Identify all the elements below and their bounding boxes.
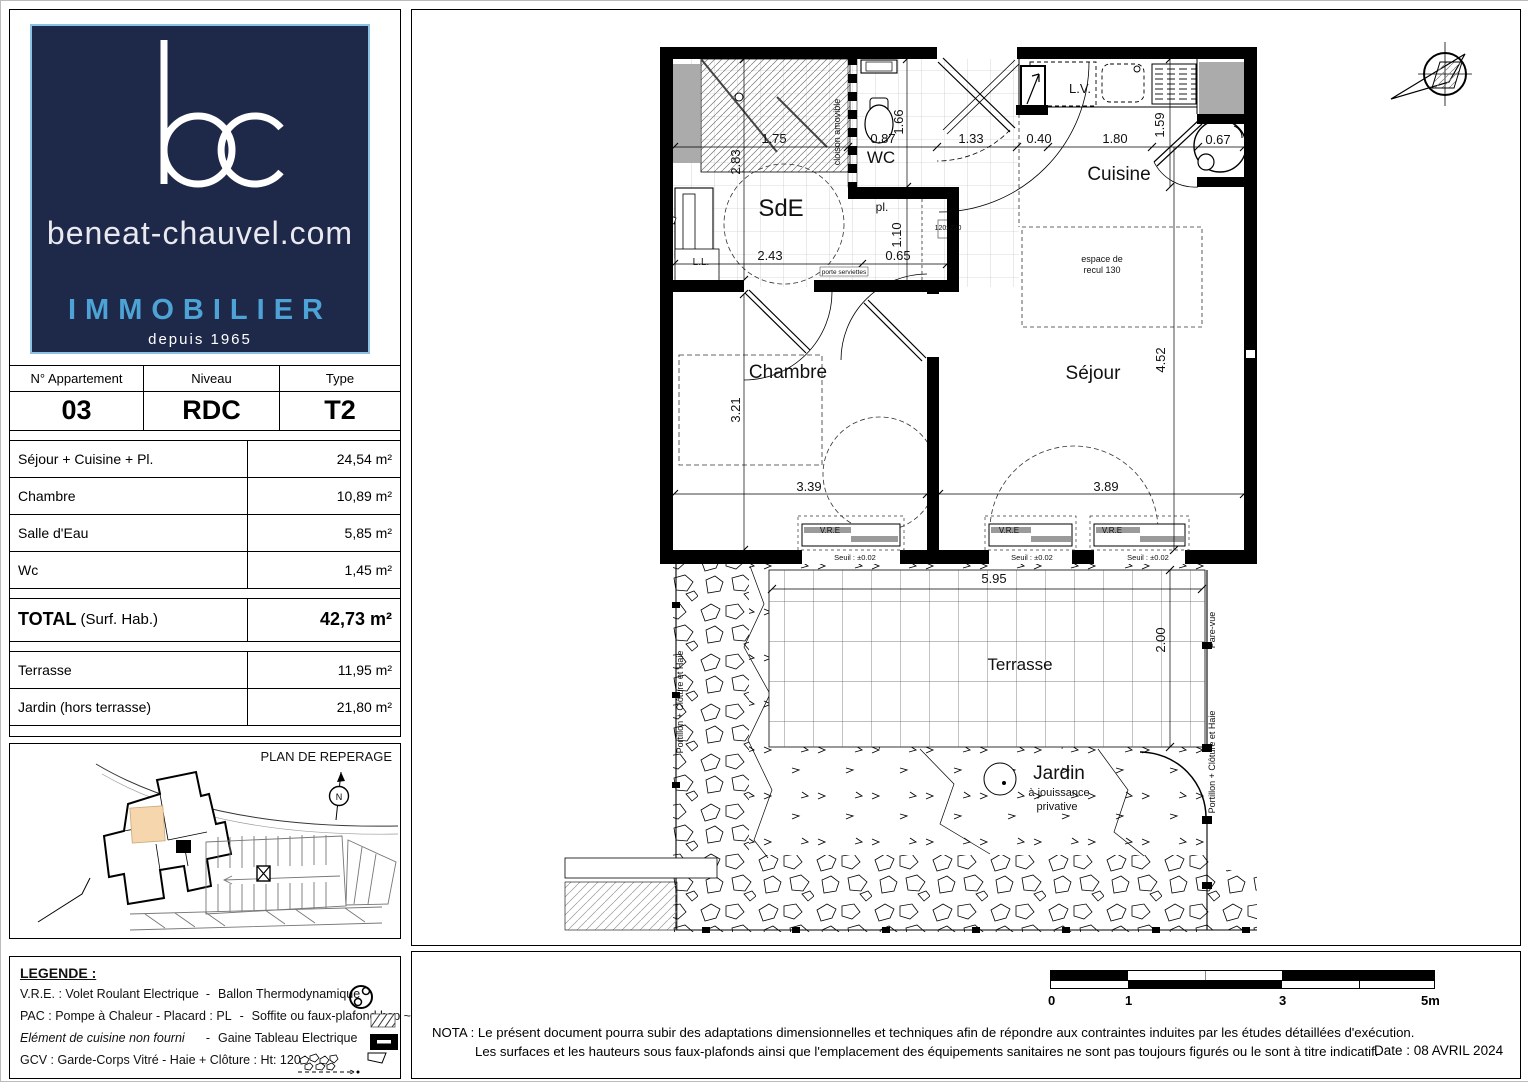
table-value-row: 03 RDC T2: [10, 391, 400, 430]
dim-1-80: 1.80: [1102, 131, 1127, 146]
table-row: Jardin (hors terrasse) 21,80 m²: [10, 688, 400, 725]
row-label: Chambre: [10, 477, 247, 514]
windows: [798, 516, 1189, 550]
table-total-row: TOTAL (Surf. Hab.) 42,73 m²: [10, 598, 400, 641]
legend-right: Ballon Thermodynamique: [218, 987, 360, 1001]
svg-text:N: N: [336, 792, 343, 802]
dim-1-10: 1.10: [889, 222, 904, 247]
table-row: Chambre 10,89 m²: [10, 477, 400, 514]
wall-notch: [1246, 350, 1255, 358]
dim-1-59: 1.59: [1152, 112, 1167, 137]
nota-line1: NOTA : Le présent document pourra subir …: [432, 1025, 1414, 1040]
total-suffix: (Surf. Hab.): [76, 611, 158, 628]
espace-recul-zone: [1022, 227, 1202, 327]
plan-date: Date : 08 AVRIL 2024: [1374, 1043, 1503, 1058]
legend-row: PAC : Pompe à Chaleur - Placard : PL-Sof…: [20, 1007, 400, 1026]
dim-0-65: 0.65: [885, 248, 910, 263]
value-appartement: 03: [10, 391, 143, 430]
jardin-sub-2: privative: [1037, 801, 1078, 813]
label-placard: pl.: [876, 200, 889, 214]
cloison-amovible-partition: [848, 59, 857, 187]
sink-outline: [1102, 64, 1144, 102]
row-label: Salle d'Eau: [10, 514, 247, 551]
row-value: 1,45 m²: [247, 551, 400, 588]
table-row: Salle d'Eau 5,85 m²: [10, 514, 400, 551]
header-appartement: N° Appartement: [10, 365, 143, 391]
total-label: TOTAL: [18, 609, 76, 630]
legend-left: V.R.E. : Volet Roulant Electrique: [20, 985, 198, 1004]
haie-cloture-icon: [296, 1053, 362, 1078]
label-lave-linge: L.L.: [693, 257, 710, 268]
dim-5-95: 5.95: [981, 571, 1006, 586]
table-row: Terrasse 11,95 m²: [10, 651, 400, 688]
room-label-terrasse: Terrasse: [987, 655, 1052, 674]
room-label-cuisine: Cuisine: [1087, 164, 1150, 185]
floorplan-panel: SdEWCCuisineChambreSéjourTerrasseJardinà…: [411, 9, 1521, 946]
scale-label-3: 3: [1279, 993, 1286, 1008]
row-value: 24,54 m²: [247, 440, 400, 477]
row-label: Terrasse: [10, 651, 247, 688]
left-panel: beneat-chauvel.com IMMOBILIER depuis 196…: [9, 9, 401, 737]
legend-sep: -: [232, 1007, 252, 1026]
value-type: T2: [279, 391, 400, 430]
nota-panel: 0 1 3 5m NOTA : Le présent document pour…: [411, 951, 1521, 1079]
agency-logo: beneat-chauvel.com IMMOBILIER depuis 196…: [30, 24, 370, 354]
table-row: Séjour + Cuisine + Pl. 24,54 m²: [10, 440, 400, 477]
dim-4-52: 4.52: [1153, 347, 1168, 372]
table-row: Wc 1,45 m²: [10, 551, 400, 588]
tree-icon: [984, 763, 1016, 795]
soffite-hatch-icon: [370, 1013, 396, 1032]
row-label: Séjour + Cuisine + Pl.: [10, 440, 247, 477]
sde-door-leaf: [745, 290, 810, 353]
north-arrow-icon: [1391, 42, 1472, 106]
room-label-sde: SdE: [758, 195, 803, 222]
dim-3-89: 3.89: [1093, 479, 1118, 494]
pare-vue-label: Pare-vue: [1207, 612, 1217, 649]
stone-bed-bottom: [739, 855, 1209, 932]
legend-right: Gaine Tableau Electrique: [218, 1031, 357, 1045]
dim-2-43: 2.43: [757, 248, 782, 263]
shower-area: [673, 59, 850, 172]
dim-1-33: 0.40: [1026, 131, 1051, 146]
room-label-chambre: Chambre: [749, 362, 827, 383]
scale-label-0: 0: [1048, 993, 1055, 1008]
window-chambre: [798, 516, 904, 550]
row-value: 21,80 m²: [247, 688, 400, 725]
reperage-title: PLAN DE REPERAGE: [261, 749, 393, 764]
scale-label-5m: 5m: [1421, 993, 1440, 1008]
legend-left: PAC : Pompe à Chaleur - Placard : PL: [20, 1009, 232, 1023]
dim-1-33b: 1.33: [958, 131, 983, 146]
chambre-door-leaf: [864, 300, 926, 361]
duct-block: [1199, 62, 1244, 114]
turning-circle-chambre: [823, 417, 937, 531]
scale-bar: 0 1 3 5m: [1050, 970, 1435, 989]
legend-row: Elément de cuisine non fourni-Gaine Tabl…: [20, 1029, 400, 1048]
label-espace-recul-2: recul 130: [1083, 265, 1120, 275]
north-icon: N: [330, 772, 349, 820]
room-label-wc: WC: [867, 148, 895, 167]
dim-2-83: 2.83: [728, 149, 743, 174]
room-label-sejour: Séjour: [1066, 363, 1122, 384]
dim-3-21: 3.21: [728, 397, 743, 422]
highlighted-unit: [130, 806, 165, 843]
dim-1-66: 1.66: [891, 109, 906, 134]
value-niveau: RDC: [143, 391, 279, 430]
total-value: 42,73 m²: [247, 598, 400, 641]
fence-label-left: Portillon + Clôture et Haie: [675, 651, 685, 754]
jardin-sub-1: à jouissance: [1028, 787, 1089, 799]
legend-row: V.R.E. : Volet Roulant Electrique-Ballon…: [20, 985, 400, 1004]
turning-circle-sejour: [990, 446, 1158, 530]
logo-since-text: depuis 1965: [32, 331, 368, 348]
seuil-label-3: Seuil : ±0.02: [1127, 553, 1169, 562]
row-value: 10,89 m²: [247, 477, 400, 514]
ballon-thermodynamique-icon: [346, 983, 376, 1014]
table-header-row: N° Appartement Niveau Type: [10, 365, 400, 391]
gaine-tableau-electrique-icon: [366, 1033, 400, 1068]
label-cloison-amovible: cloison amovible: [832, 99, 842, 166]
fence-label-right: Portillon + Clôture et Haie: [1207, 711, 1217, 814]
seuil-label-2: Seuil : ±0.02: [1011, 553, 1053, 562]
dim-3-39: 3.39: [796, 479, 821, 494]
label-espace-recul-1: espace de: [1081, 254, 1123, 264]
logo-site-text: beneat-chauvel.com: [32, 215, 368, 252]
dim-1-75: 1.75: [761, 131, 786, 146]
vre-label-3: V.R.E: [1102, 526, 1122, 535]
tap-icon: [1134, 66, 1140, 72]
row-value: 5,85 m²: [247, 514, 400, 551]
shower-wall-block: [673, 64, 700, 163]
seuil-label-1: Seuil : ±0.02: [834, 553, 876, 562]
nota-line2: Les surfaces et les hauteurs sous faux-p…: [475, 1044, 1378, 1059]
site-map: PLAN DE REPERAGE: [10, 744, 399, 937]
legend-left: Elément de cuisine non fourni: [20, 1029, 198, 1048]
legend-panel: LEGENDE : V.R.E. : Volet Roulant Electri…: [9, 956, 401, 1079]
header-niveau: Niveau: [143, 365, 279, 391]
legend-sep: -: [198, 985, 218, 1004]
vre-label-2: V.R.E: [999, 526, 1019, 535]
bc-monogram-icon: [32, 26, 368, 206]
shower-drain-icon: [735, 93, 743, 101]
dim-2-00: 2.00: [1153, 627, 1168, 652]
label-porte-serviettes: porte serviettes: [822, 269, 867, 276]
label-lave-vaisselle: L.V.: [1069, 81, 1091, 96]
row-label: Wc: [10, 551, 247, 588]
legend-sep: -: [198, 1029, 218, 1048]
header-type: Type: [279, 365, 400, 391]
reperage-panel: PLAN DE REPERAGE: [9, 743, 401, 939]
dim-0-67: 0.67: [1205, 132, 1230, 147]
legend-title: LEGENDE :: [20, 965, 400, 981]
plan-sheet: beneat-chauvel.com IMMOBILIER depuis 196…: [0, 0, 1528, 1082]
label-porte-120: 120x220: [935, 225, 962, 232]
vre-label-1: V.R.E: [820, 526, 840, 535]
logo-brand-text: IMMOBILIER: [32, 294, 368, 327]
row-value: 11,95 m²: [247, 651, 400, 688]
floorplan-drawing: SdEWCCuisineChambreSéjourTerrasseJardinà…: [412, 10, 1519, 944]
appliance-hatch: [1152, 64, 1196, 104]
legend-right: Soffite ou faux-plafond hsp ~230: [252, 1009, 432, 1023]
scale-label-1: 1: [1125, 993, 1132, 1008]
room-label-jardin: Jardin: [1033, 763, 1085, 784]
legend-left: GCV : Garde-Corps Vitré - Haie + Clôture…: [20, 1053, 301, 1067]
row-label: Jardin (hors terrasse): [10, 688, 247, 725]
